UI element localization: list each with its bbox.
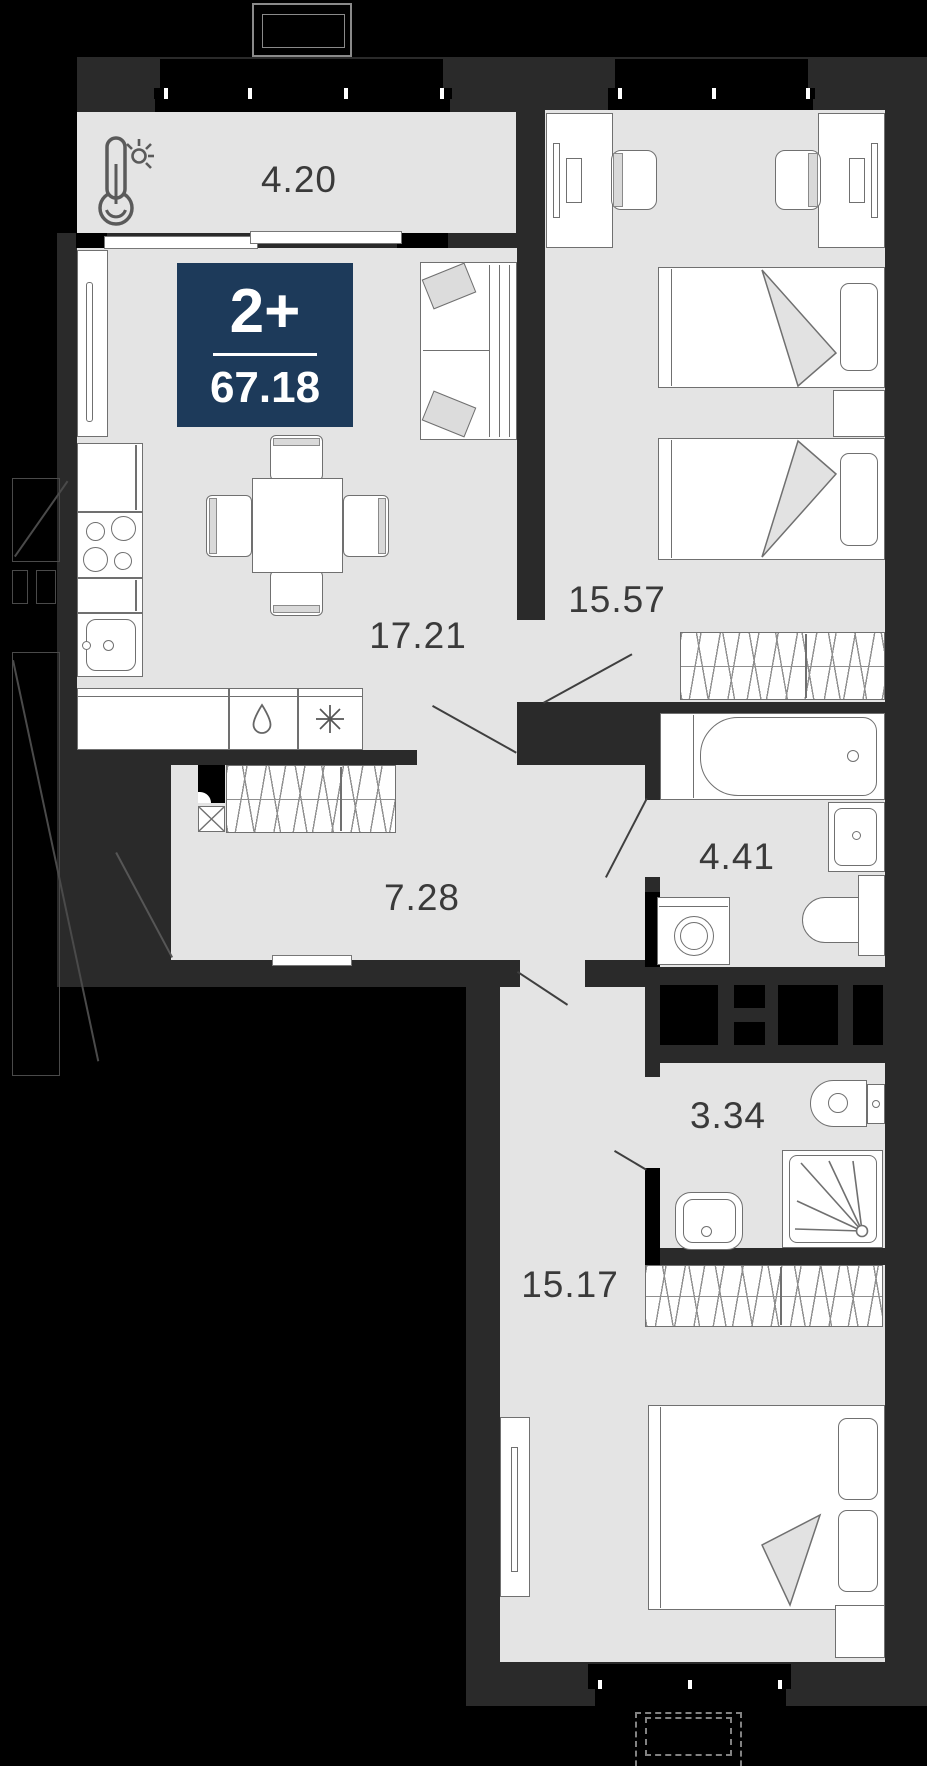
floorplan-canvas: 4.20 17.21 15.57 4.41 7.28 3.34 15.17 2+…: [0, 0, 927, 1766]
washbasin-drain: [701, 1226, 712, 1237]
shower-spray-icon: [789, 1155, 877, 1243]
counter-divider: [135, 445, 137, 510]
fridge-handle: [86, 282, 93, 422]
door-gap-bedroom-bottom: [520, 960, 585, 987]
nightstand: [833, 390, 885, 437]
dining-chair-back: [209, 498, 217, 554]
burner: [114, 552, 132, 570]
counter-divider: [228, 689, 230, 749]
toilet-tank-button: [872, 1100, 880, 1108]
burner: [111, 516, 136, 541]
monitor: [553, 143, 560, 218]
window-slab: [160, 59, 443, 88]
desk-chair-back: [613, 153, 623, 207]
bed-blanket-fold: [658, 267, 885, 388]
balcony-door-frame: [104, 236, 258, 249]
bed-blanket-fold: [648, 1405, 885, 1610]
toilet-bowl: [802, 897, 859, 943]
window-slab: [615, 59, 808, 88]
sofa-seat-line: [423, 350, 489, 351]
room-label-bathroom-small: 3.34: [648, 1092, 808, 1140]
washbasin-inner: [683, 1199, 736, 1243]
window-sill: [588, 1680, 791, 1689]
shaft-box: [853, 985, 883, 1045]
water-drop-icon: [250, 703, 274, 735]
dining-table: [252, 478, 343, 573]
balcony-door-stub: [397, 233, 448, 248]
neighbor-panel-icon: [36, 570, 56, 604]
sofa-line: [499, 265, 500, 437]
entrance-door-sill: [272, 955, 352, 966]
burner: [83, 547, 108, 572]
wardrobe: [680, 632, 885, 700]
window-band: [155, 99, 450, 112]
door-gap-bedroom-top: [517, 620, 545, 702]
snowflake-asterisk-icon: [315, 704, 345, 734]
wardrobe: [645, 1265, 883, 1327]
wardrobe-divider: [340, 767, 342, 831]
neighbor-panel-icon: [12, 570, 28, 604]
wardrobe-divider: [780, 1267, 782, 1325]
bathtub-step-line: [693, 715, 694, 798]
sofa-line: [489, 265, 490, 437]
counter-divider: [135, 580, 137, 611]
washbasin-drain: [852, 831, 861, 840]
window-sill: [154, 88, 452, 99]
bed-blanket-fold: [658, 438, 885, 560]
shaft-box: [734, 985, 765, 1008]
apartment-type-label: 2+: [230, 281, 301, 343]
window-sill: [608, 88, 815, 99]
kitchen-counter: [77, 578, 143, 613]
wardrobe-divider: [805, 634, 807, 698]
thermometer-sun-icon: [92, 134, 154, 230]
sofa-line: [509, 265, 510, 437]
window-slab: [595, 1689, 786, 1706]
shaft-box: [660, 985, 718, 1045]
desk-pc: [849, 158, 865, 203]
dining-chair-back: [273, 438, 320, 446]
window-band: [608, 99, 813, 110]
washing-machine-line: [659, 906, 728, 907]
sink-drain: [103, 640, 114, 651]
shaft-box: [778, 985, 838, 1045]
counter-top-line: [78, 696, 362, 697]
window-band: [588, 1664, 791, 1680]
burner: [86, 522, 105, 541]
balcony-door-stub: [76, 233, 107, 248]
apartment-area-value: 67.18: [210, 366, 320, 410]
room-label-bathroom-large: 4.41: [657, 833, 817, 881]
balcony-side-wall: [48, 57, 77, 233]
passage-living-hall: [417, 750, 517, 765]
room-label-hallway: 7.28: [342, 874, 502, 922]
tv: [511, 1447, 518, 1572]
room-label-bedroom-top: 15.57: [537, 576, 697, 624]
neighbor-balcony-inner: [262, 14, 345, 48]
nightstand: [835, 1605, 885, 1658]
monitor: [871, 143, 878, 218]
bathtub-drain: [847, 750, 859, 762]
badge-divider: [213, 353, 317, 356]
room-label-bedroom-bottom: 15.17: [490, 1261, 650, 1309]
neighbor-panel-icon: [12, 652, 60, 1076]
toilet-tank: [858, 875, 885, 956]
bathroom-wall-stub: [645, 1168, 660, 1265]
dining-chair-back: [378, 498, 386, 554]
wardrobe: [226, 765, 396, 833]
kitchen-counter: [77, 443, 143, 512]
sink-faucet: [82, 641, 91, 650]
dining-chair-back: [273, 605, 320, 613]
balcony-door-frame: [250, 231, 402, 244]
washing-machine-drum-inner: [680, 922, 708, 950]
shaft-box: [734, 1022, 765, 1045]
toilet-drain: [828, 1093, 848, 1113]
apartment-badge: 2+ 67.18: [177, 263, 353, 427]
room-label-kitchen-living: 17.21: [338, 612, 498, 660]
desk-pc: [566, 158, 582, 203]
future-balcony-dashed-inner: [645, 1717, 732, 1756]
room-label-balcony: 4.20: [219, 156, 379, 204]
counter-divider: [297, 689, 299, 749]
desk-chair-back: [808, 153, 818, 207]
shaft-cross-lines: [198, 806, 225, 832]
